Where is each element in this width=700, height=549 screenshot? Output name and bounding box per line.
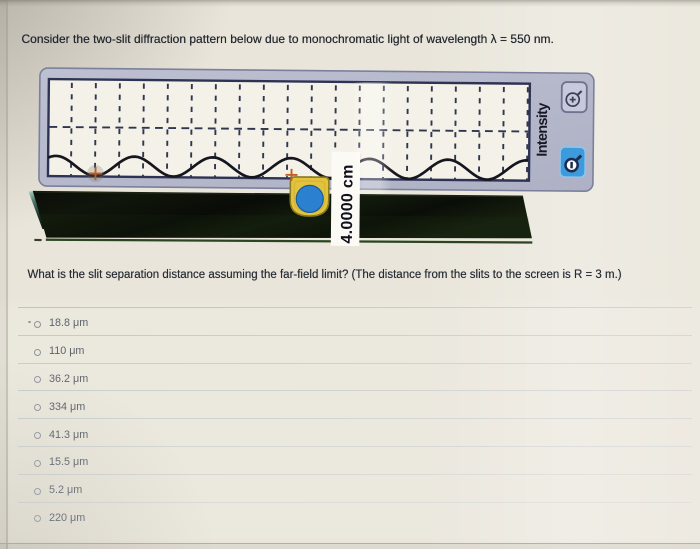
svg-text:Intensity: Intensity	[535, 103, 552, 157]
